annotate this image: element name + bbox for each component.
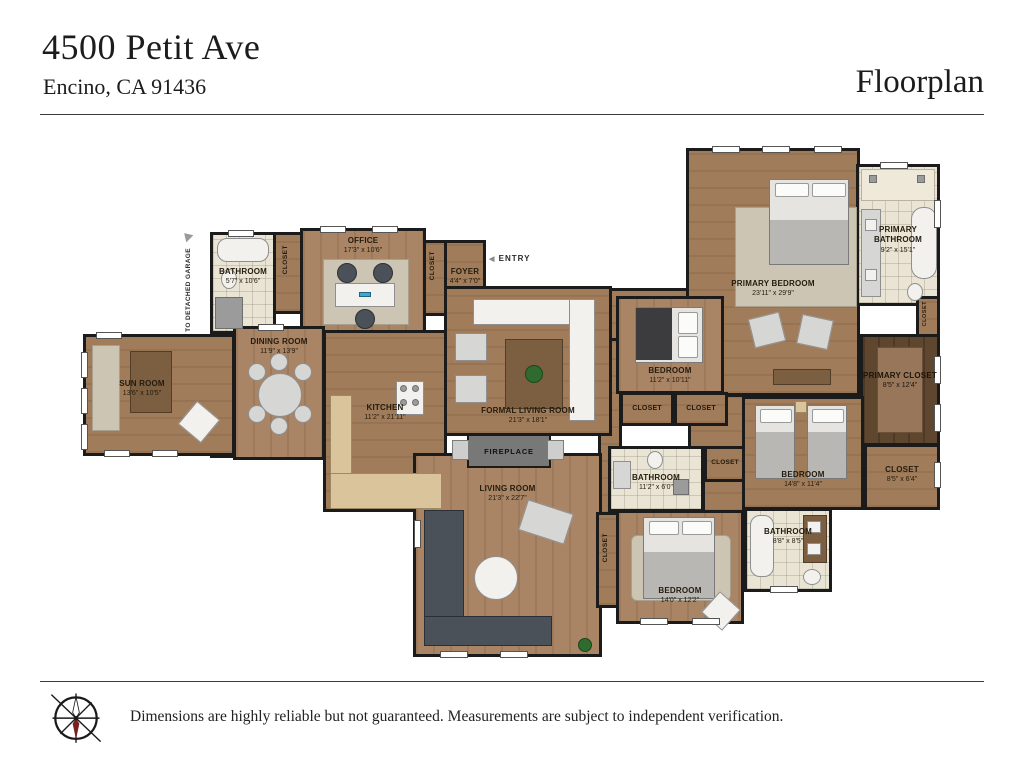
closet-label: CLOSET <box>429 251 436 280</box>
room-bedroom-bottom: BEDROOM14'0" x 12'2" <box>616 510 744 624</box>
closet-label: CLOSET <box>602 533 609 562</box>
armchair <box>455 375 487 403</box>
entry-annotation: ◀ ENTRY <box>489 254 530 263</box>
window <box>880 162 908 169</box>
closet: CLOSET <box>273 232 303 314</box>
closet: CLOSET <box>704 446 746 482</box>
entry-label: ENTRY <box>499 254 531 263</box>
room-label: PRIMARY BEDROOM23'11" x 29'9" <box>689 279 857 298</box>
shower <box>215 297 243 329</box>
plant <box>578 638 592 652</box>
room-label: BEDROOM14'0" x 12'2" <box>619 586 741 605</box>
dining-chair <box>248 405 266 423</box>
header-divider <box>40 114 984 115</box>
bed <box>769 179 849 265</box>
window <box>934 200 941 228</box>
window <box>814 146 842 153</box>
footer: Dimensions are highly reliable but not g… <box>48 688 783 746</box>
chaise <box>518 499 574 544</box>
closet-label: CLOSET <box>282 245 289 274</box>
address-line1: 4500 Petit Ave <box>42 26 260 68</box>
window <box>372 226 398 233</box>
closet-label: CLOSET <box>922 301 928 326</box>
fireplace-hearth <box>452 440 469 460</box>
window <box>104 450 130 457</box>
coffee-table <box>474 556 518 600</box>
garage-label: TO DETACHED GARAGE <box>185 248 192 332</box>
room-dining: DINING ROOM11'9" x 13'9" <box>233 326 325 460</box>
hallway <box>702 478 746 514</box>
shower-head <box>917 175 925 183</box>
window <box>640 618 668 625</box>
room-label: LIVING ROOM21'3" x 22'7" <box>416 484 599 503</box>
address-line2: Encino, CA 91436 <box>43 74 206 100</box>
room-bedroom-right: BEDROOM14'8" x 11'4" <box>742 396 864 510</box>
window <box>762 146 790 153</box>
room-label: CLOSET8'5" x 6'4" <box>867 465 937 484</box>
room-closet-br: CLOSET8'5" x 6'4" <box>864 444 940 510</box>
armchair <box>796 314 834 350</box>
floorplan-page: 4500 Petit Ave Encino, CA 91436 Floorpla… <box>0 0 1024 768</box>
sectional-sofa <box>569 299 595 421</box>
closet: CLOSET <box>674 392 728 426</box>
fireplace-hearth <box>547 440 564 460</box>
disclaimer-text: Dimensions are highly reliable but not g… <box>130 708 783 726</box>
room-primary-bathroom: PRIMARY BATHROOM9'2" x 15'1" <box>856 164 940 306</box>
room-label: BEDROOM11'2" x 10'11" <box>619 366 721 385</box>
office-chair <box>373 263 393 283</box>
room-label: PRIMARY CLOSET8'5" x 12'4" <box>863 371 937 390</box>
garage-arrow-icon <box>181 230 194 243</box>
room-sunroom: SUN ROOM13'6" x 10'5" <box>83 334 235 456</box>
fireplace-label: FIREPLACE <box>484 447 534 456</box>
shower-head <box>869 175 877 183</box>
armchair <box>178 401 220 443</box>
window <box>692 618 720 625</box>
window <box>934 404 941 432</box>
bed <box>635 307 703 363</box>
sectional-sofa <box>424 616 552 646</box>
closet-label: CLOSET <box>707 459 743 467</box>
shower <box>861 169 935 201</box>
room-label: BATHROOM11'2" x 6'0" <box>611 473 701 492</box>
dining-chair <box>294 405 312 423</box>
fireplace: FIREPLACE <box>467 434 551 468</box>
plant <box>525 365 543 383</box>
window <box>440 651 468 658</box>
footer-divider <box>40 681 984 682</box>
armchair <box>748 312 786 349</box>
room-office: OFFICE17'3" x 10'6" <box>300 228 426 334</box>
room-label: SUN ROOM13'6" x 10'5" <box>86 379 198 398</box>
closet-label: CLOSET <box>623 404 671 413</box>
armchair <box>455 333 487 361</box>
office-chair <box>337 263 357 283</box>
window <box>500 651 528 658</box>
room-label: OFFICE17'3" x 10'6" <box>303 236 423 255</box>
room-label: PRIMARY BATHROOM9'2" x 15'1" <box>859 225 937 255</box>
room-label: BATHROOM5'7" x 10'6" <box>213 267 273 286</box>
toilet <box>907 283 923 301</box>
closet: CLOSET <box>620 392 674 426</box>
office-chair <box>355 309 375 329</box>
room-label: FORMAL LIVING ROOM21'3" x 18'1" <box>447 406 609 425</box>
window <box>258 324 284 331</box>
entry-arrow-icon: ◀ <box>489 256 495 263</box>
window <box>96 332 122 339</box>
room-bedroom-mid: BEDROOM11'2" x 10'11" <box>616 296 724 394</box>
window <box>228 230 254 237</box>
room-living: LIVING ROOM21'3" x 22'7" <box>413 453 602 657</box>
monitor <box>359 292 371 297</box>
window <box>81 424 88 450</box>
page-title: Floorplan <box>856 64 984 101</box>
window <box>712 146 740 153</box>
bathtub <box>217 238 269 262</box>
room-label: KITCHEN11'2" x 21'11" <box>326 403 444 422</box>
room-label: BATHROOM8'8" x 8'5" <box>747 527 829 546</box>
burner <box>412 385 419 392</box>
window <box>770 586 798 593</box>
window <box>152 450 178 457</box>
room-bathroom-top-left: BATHROOM5'7" x 10'6" <box>210 232 276 334</box>
room-bathroom-mid: BATHROOM11'2" x 6'0" <box>608 446 704 512</box>
dining-chair <box>294 363 312 381</box>
room-label: DINING ROOM11'9" x 13'9" <box>236 337 322 356</box>
window <box>320 226 346 233</box>
toilet <box>647 451 663 469</box>
room-primary-closet: PRIMARY CLOSET8'5" x 12'4" <box>860 334 940 446</box>
dresser <box>773 369 831 385</box>
burner <box>400 385 407 392</box>
closet-label: CLOSET <box>677 404 725 413</box>
twin-bed <box>807 405 847 479</box>
room-bathroom-br: BATHROOM8'8" x 8'5" <box>744 508 832 592</box>
compass-rose-icon <box>48 688 104 746</box>
dining-chair <box>248 363 266 381</box>
twin-bed <box>755 405 795 479</box>
dining-chair <box>270 417 288 435</box>
toilet <box>803 569 821 585</box>
room-formal-living: FORMAL LIVING ROOM21'3" x 18'1" <box>444 286 612 436</box>
sink <box>865 269 877 281</box>
window <box>414 520 421 548</box>
window <box>81 352 88 378</box>
room-label: FOYER4'4" x 7'0" <box>447 267 483 286</box>
nightstand <box>795 401 807 413</box>
room-label: BEDROOM14'8" x 11'4" <box>745 470 861 489</box>
